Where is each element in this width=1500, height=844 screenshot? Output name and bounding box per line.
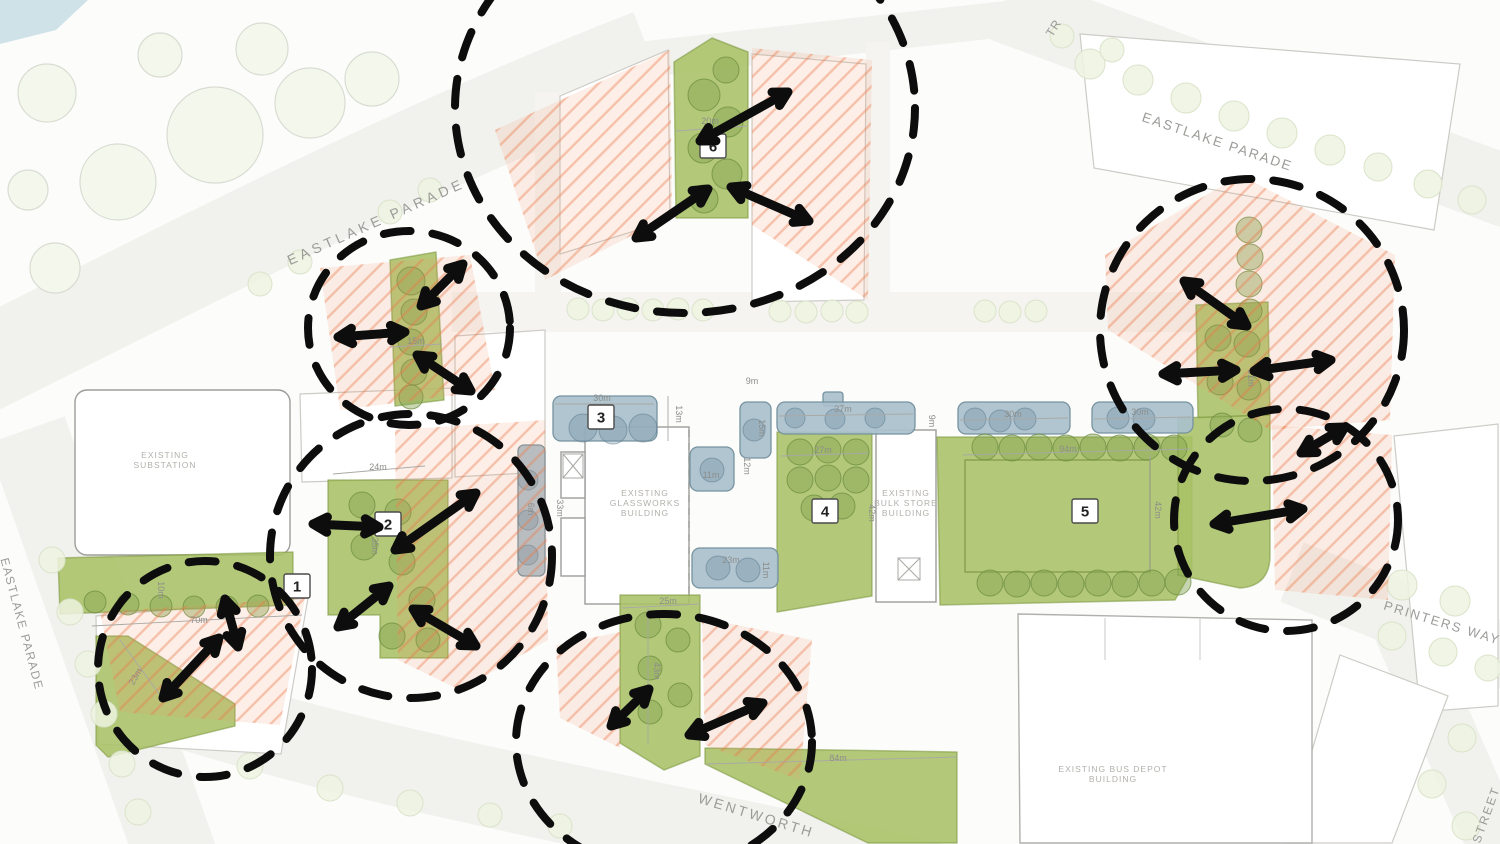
dimension-label: 11m: [703, 470, 720, 480]
tree-icon: [1267, 118, 1297, 148]
tree-icon: [713, 57, 739, 83]
tree-icon: [977, 570, 1003, 596]
dimension-label: 42m: [1153, 501, 1163, 519]
tree-icon: [846, 301, 868, 323]
tree-icon: [1418, 770, 1446, 798]
tree-icon: [964, 408, 986, 430]
tree-icon: [843, 439, 869, 465]
tree-icon: [787, 467, 813, 493]
tree-icon: [1315, 135, 1345, 165]
tree-icon: [567, 298, 589, 320]
glassworks-annex-2: [561, 518, 585, 576]
landscape-blob: [138, 33, 182, 77]
tree-icon: [125, 799, 151, 825]
dimension-label: 15m: [407, 336, 425, 346]
tree-icon: [478, 803, 502, 827]
landscape-blob: [167, 87, 263, 183]
tree-icon: [84, 591, 106, 613]
landscape-blob: [275, 68, 345, 138]
tree-icon: [1378, 622, 1406, 650]
svg-text:3: 3: [597, 410, 605, 427]
tree-icon: [1414, 170, 1442, 198]
svg-text:1: 1: [293, 579, 301, 596]
tree-icon: [999, 435, 1025, 461]
tree-icon: [1440, 586, 1470, 616]
tree-icon: [865, 408, 885, 428]
tree-icon: [1031, 570, 1057, 596]
tree-icon: [1448, 724, 1476, 752]
existing-bus-depot: [1018, 614, 1312, 843]
tree-icon: [1112, 571, 1138, 597]
tree-icon: [1025, 300, 1047, 322]
dimension-label: 30m: [1004, 409, 1022, 419]
landscape-blob: [18, 64, 76, 122]
svg-text:4: 4: [821, 504, 830, 521]
space-marker-5: 5: [1072, 499, 1098, 523]
tree-icon: [843, 467, 869, 493]
site-plan-canvas: 20m15m30m13m9m15m12m11m37m9m27m42m23m11m…: [0, 0, 1500, 844]
tree-icon: [1429, 638, 1457, 666]
landscape-blob: [80, 144, 156, 220]
tree-icon: [397, 790, 423, 816]
tree-icon: [815, 465, 841, 491]
dimension-label: 70m: [190, 615, 208, 625]
dimension-label: 23m: [722, 555, 740, 565]
dimension-label: 35m: [370, 537, 380, 555]
tree-icon: [109, 751, 135, 777]
tree-icon: [769, 300, 791, 322]
dimension-label: 6m: [526, 503, 536, 516]
open-space-east-lower: [1178, 415, 1270, 588]
tree-icon: [1085, 570, 1111, 596]
glassworks-annex-1: [561, 452, 585, 498]
tree-icon: [688, 79, 720, 111]
dimension-label: 10m: [156, 581, 166, 599]
tree-icon: [1123, 65, 1153, 95]
tree-icon: [1458, 186, 1486, 214]
tree-icon: [1058, 571, 1084, 597]
tree-icon: [1387, 570, 1417, 600]
space-marker-1: 1: [284, 574, 310, 598]
landscape-blob: [236, 23, 288, 75]
tree-icon: [1171, 83, 1201, 113]
tree-icon: [999, 301, 1021, 323]
svg-text:5: 5: [1081, 504, 1089, 521]
landscape-blob: [345, 52, 399, 106]
building-label-bulk-store: EXISTINGBULK STOREBUILDING: [874, 488, 938, 518]
tree-icon: [1364, 153, 1392, 181]
dimension-label: 27m: [814, 445, 832, 455]
dimension-label: 30m: [593, 393, 611, 403]
dimension-label: 30m: [1131, 407, 1149, 417]
dimension-label: 37m: [834, 404, 852, 414]
tree-icon: [668, 683, 692, 707]
tree-icon: [629, 414, 657, 442]
tree-icon: [787, 439, 813, 465]
dimension-label: 12m: [742, 457, 752, 475]
dimension-label: 11m: [761, 562, 771, 579]
tree-icon: [349, 492, 375, 518]
svg-text:2: 2: [384, 517, 392, 534]
tree-icon: [795, 301, 817, 323]
tree-icon: [1100, 38, 1124, 62]
tree-icon: [248, 272, 272, 296]
tree-icon: [1219, 101, 1249, 131]
dimension-label: 13m: [674, 405, 684, 423]
space-marker-4: 4: [812, 499, 838, 523]
dimension-label: 24m: [369, 462, 387, 472]
dimension-label: 9m: [746, 376, 759, 386]
tree-icon: [974, 300, 996, 322]
tree-icon: [317, 775, 343, 801]
masterplan-diagram: 20m15m30m13m9m15m12m11m37m9m27m42m23m11m…: [0, 0, 1500, 844]
tree-icon: [972, 434, 998, 460]
tree-icon: [666, 628, 690, 652]
dimension-label: 84m: [829, 753, 847, 763]
tree-icon: [821, 300, 843, 322]
dimension-label: 15m: [757, 419, 767, 437]
tree-icon: [39, 547, 65, 573]
tree-icon: [1475, 655, 1500, 681]
tree-icon: [1139, 570, 1165, 596]
dimension-label: 33m: [555, 499, 565, 517]
dimension-label: 94m: [1059, 444, 1077, 454]
dimension-label: 43m: [652, 662, 662, 680]
tree-icon: [1004, 571, 1030, 597]
building-label-substation: EXISTINGSUBSTATION: [133, 450, 196, 470]
dimension-label: 25m: [659, 596, 677, 606]
tree-icon: [1026, 434, 1052, 460]
landscape-blob: [8, 170, 48, 210]
existing-substation: [75, 390, 290, 555]
dimension-label: 9m: [927, 415, 937, 428]
tree-icon: [1080, 434, 1106, 460]
tree-icon: [57, 599, 83, 625]
space-marker-3: 3: [588, 405, 614, 429]
tree-icon: [1107, 435, 1133, 461]
landscape-blob: [30, 243, 80, 293]
tree-icon: [785, 408, 805, 428]
